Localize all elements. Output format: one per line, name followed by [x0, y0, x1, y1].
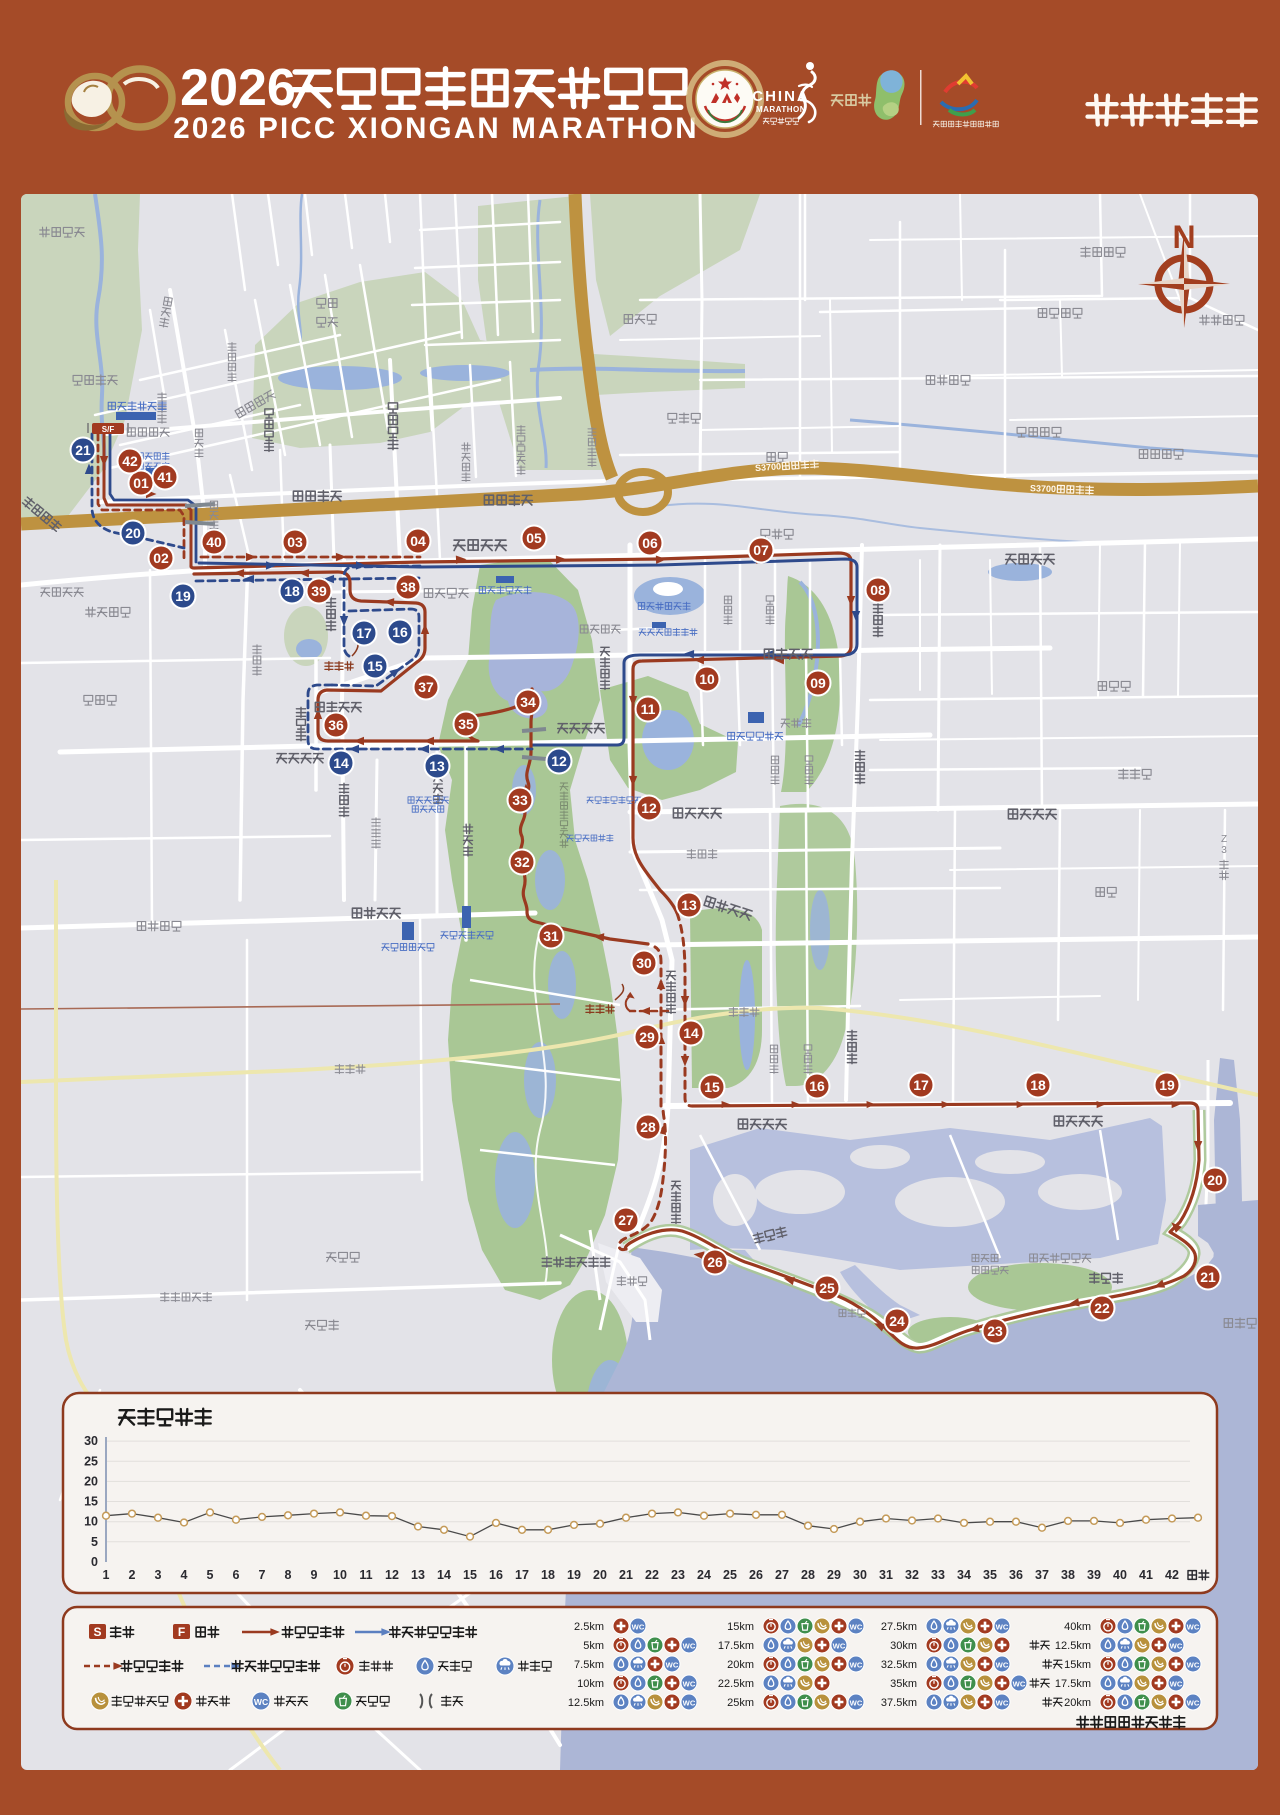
svg-text:S: S	[93, 1625, 101, 1639]
svg-text:09: 09	[810, 675, 826, 691]
svg-text:14: 14	[437, 1568, 451, 1582]
svg-text:17.5km: 17.5km	[718, 1640, 754, 1652]
svg-text:13: 13	[429, 758, 445, 774]
svg-text:36: 36	[328, 717, 344, 733]
svg-text:22.5km: 22.5km	[718, 1678, 754, 1690]
svg-text:23: 23	[987, 1323, 1003, 1339]
svg-text:WC: WC	[996, 1660, 1009, 1669]
svg-text:20: 20	[593, 1568, 607, 1582]
svg-text:12: 12	[551, 753, 567, 769]
svg-text:30: 30	[853, 1568, 867, 1582]
svg-text:41: 41	[157, 469, 173, 485]
svg-text:9: 9	[311, 1568, 318, 1582]
svg-text:15: 15	[704, 1079, 720, 1095]
svg-text:13: 13	[681, 897, 697, 913]
svg-text:WC: WC	[1013, 1679, 1026, 1688]
svg-text:26: 26	[749, 1568, 763, 1582]
svg-text:33: 33	[931, 1568, 945, 1582]
svg-text:04: 04	[410, 533, 426, 549]
svg-text:WC: WC	[1187, 1622, 1200, 1631]
svg-text:1: 1	[103, 1568, 110, 1582]
svg-text:13: 13	[411, 1568, 425, 1582]
svg-text:27: 27	[618, 1212, 634, 1228]
svg-text:32: 32	[905, 1568, 919, 1582]
svg-text:WC: WC	[850, 1698, 863, 1707]
svg-text:8: 8	[285, 1568, 292, 1582]
svg-text:15: 15	[463, 1568, 477, 1582]
svg-text:30: 30	[636, 955, 652, 971]
svg-text:21: 21	[1200, 1269, 1216, 1285]
svg-text:7: 7	[259, 1568, 266, 1582]
svg-text:42: 42	[122, 453, 138, 469]
svg-text:WC: WC	[683, 1679, 696, 1688]
svg-text:37: 37	[1035, 1568, 1049, 1582]
svg-text:35km: 35km	[890, 1678, 917, 1690]
svg-text:S3700: S3700	[755, 461, 782, 473]
svg-text:25: 25	[819, 1280, 835, 1296]
svg-text:17: 17	[515, 1568, 529, 1582]
svg-text:17: 17	[913, 1077, 929, 1093]
svg-text:33: 33	[512, 792, 528, 808]
svg-text:WC: WC	[833, 1641, 846, 1650]
svg-text:WC: WC	[683, 1698, 696, 1707]
svg-text:WC: WC	[850, 1622, 863, 1631]
svg-text:WC: WC	[850, 1660, 863, 1669]
svg-text:WC: WC	[996, 1622, 1009, 1631]
svg-text:20km: 20km	[727, 1659, 754, 1671]
svg-text:32: 32	[514, 854, 530, 870]
svg-text:Z: Z	[1221, 834, 1227, 845]
svg-text:6: 6	[233, 1568, 240, 1582]
svg-text:N: N	[1172, 219, 1195, 255]
svg-text:2026: 2026	[180, 59, 296, 117]
svg-text:S/F: S/F	[102, 425, 115, 434]
svg-text:15km: 15km	[1064, 1659, 1091, 1671]
svg-text:15: 15	[84, 1495, 98, 1509]
svg-text:10: 10	[699, 671, 715, 687]
svg-text:S3700: S3700	[1030, 483, 1056, 494]
svg-text:0: 0	[91, 1555, 98, 1569]
svg-text:18: 18	[284, 583, 300, 599]
svg-text:34: 34	[957, 1568, 971, 1582]
svg-text:21: 21	[619, 1568, 633, 1582]
svg-text:22: 22	[645, 1568, 659, 1582]
svg-text:16: 16	[489, 1568, 503, 1582]
svg-text:20km: 20km	[1064, 1697, 1091, 1709]
svg-text:24: 24	[697, 1568, 711, 1582]
svg-text:WC: WC	[254, 1697, 268, 1707]
svg-text:41: 41	[1139, 1568, 1153, 1582]
svg-text:21: 21	[75, 442, 91, 458]
svg-text:23: 23	[671, 1568, 685, 1582]
svg-text:MARATHON: MARATHON	[756, 105, 806, 114]
svg-text:25km: 25km	[727, 1697, 754, 1709]
svg-text:16: 16	[809, 1078, 825, 1094]
svg-text:11: 11	[641, 701, 656, 717]
svg-text:10: 10	[333, 1568, 347, 1582]
svg-text:14: 14	[333, 755, 349, 771]
svg-text:06: 06	[642, 535, 658, 551]
svg-text:29: 29	[639, 1029, 655, 1045]
svg-text:25: 25	[84, 1454, 98, 1468]
svg-text:19: 19	[175, 588, 191, 604]
svg-text:WC: WC	[996, 1698, 1009, 1707]
svg-text:30km: 30km	[890, 1640, 917, 1652]
svg-text:5km: 5km	[583, 1640, 604, 1652]
svg-text:10km: 10km	[577, 1678, 604, 1690]
svg-text:12: 12	[385, 1568, 399, 1582]
svg-text:19: 19	[1159, 1077, 1175, 1093]
svg-text:31: 31	[879, 1568, 893, 1582]
svg-text:22: 22	[1094, 1300, 1110, 1316]
svg-text:2026 PICC XIONGAN MARATHON: 2026 PICC XIONGAN MARATHON	[173, 112, 698, 145]
svg-text:14: 14	[683, 1025, 699, 1041]
svg-text:34: 34	[520, 694, 536, 710]
svg-text:WC: WC	[1170, 1679, 1183, 1688]
svg-text:5: 5	[207, 1568, 214, 1582]
svg-text:05: 05	[526, 530, 542, 546]
svg-text:27.5km: 27.5km	[881, 1621, 917, 1633]
svg-text:30: 30	[84, 1434, 98, 1448]
svg-text:19: 19	[567, 1568, 581, 1582]
svg-text:39: 39	[311, 583, 327, 599]
svg-text:5: 5	[91, 1535, 98, 1549]
svg-text:20: 20	[125, 525, 141, 541]
svg-text:27: 27	[775, 1568, 789, 1582]
svg-text:WC: WC	[1187, 1698, 1200, 1707]
svg-text:42: 42	[1165, 1568, 1179, 1582]
svg-text:17.5km: 17.5km	[1055, 1678, 1091, 1690]
svg-text:37: 37	[418, 679, 434, 695]
svg-text:40km: 40km	[1064, 1621, 1091, 1633]
svg-text:18: 18	[1030, 1077, 1046, 1093]
svg-text:02: 02	[153, 550, 169, 566]
svg-text:38: 38	[1061, 1568, 1075, 1582]
svg-text:20: 20	[1207, 1172, 1223, 1188]
svg-text:08: 08	[870, 582, 886, 598]
svg-text:7.5km: 7.5km	[574, 1659, 604, 1671]
svg-text:12.5km: 12.5km	[1055, 1640, 1091, 1652]
svg-text:36: 36	[1009, 1568, 1023, 1582]
svg-text:WC: WC	[1187, 1660, 1200, 1669]
svg-text:F: F	[178, 1625, 185, 1639]
svg-text:26: 26	[707, 1254, 723, 1270]
svg-text:17: 17	[356, 625, 372, 641]
svg-text:40: 40	[206, 534, 222, 550]
svg-text:WC: WC	[666, 1660, 679, 1669]
svg-text:28: 28	[640, 1119, 656, 1135]
svg-text:12: 12	[641, 800, 657, 816]
svg-text:37.5km: 37.5km	[881, 1697, 917, 1709]
svg-text:WC: WC	[683, 1641, 696, 1650]
svg-text:11: 11	[359, 1568, 372, 1582]
svg-text:16: 16	[392, 624, 408, 640]
svg-text:CHINA: CHINA	[752, 88, 810, 105]
svg-text:28: 28	[801, 1568, 815, 1582]
svg-text:39: 39	[1087, 1568, 1101, 1582]
svg-text:2.5km: 2.5km	[574, 1621, 604, 1633]
svg-text:15km: 15km	[727, 1621, 754, 1633]
svg-text:38: 38	[400, 579, 416, 595]
svg-text:32.5km: 32.5km	[881, 1659, 917, 1671]
svg-text:07: 07	[753, 542, 769, 558]
svg-text:35: 35	[458, 716, 474, 732]
svg-text:3: 3	[155, 1568, 162, 1582]
svg-text:15: 15	[367, 658, 383, 674]
svg-text:24: 24	[889, 1313, 905, 1329]
svg-text:12.5km: 12.5km	[568, 1697, 604, 1709]
svg-text:20: 20	[84, 1474, 98, 1488]
svg-text:4: 4	[181, 1568, 188, 1582]
svg-text:35: 35	[983, 1568, 997, 1582]
svg-text:3: 3	[1221, 845, 1227, 856]
svg-text:WC: WC	[1170, 1641, 1183, 1650]
svg-text:WC: WC	[632, 1622, 645, 1631]
svg-text:25: 25	[723, 1568, 737, 1582]
svg-text:29: 29	[827, 1568, 841, 1582]
svg-text:2: 2	[129, 1568, 136, 1582]
svg-text:40: 40	[1113, 1568, 1127, 1582]
svg-text:18: 18	[541, 1568, 555, 1582]
svg-text:03: 03	[287, 534, 303, 550]
svg-text:10: 10	[84, 1515, 98, 1529]
svg-text:31: 31	[543, 928, 559, 944]
svg-text:01: 01	[133, 475, 149, 491]
